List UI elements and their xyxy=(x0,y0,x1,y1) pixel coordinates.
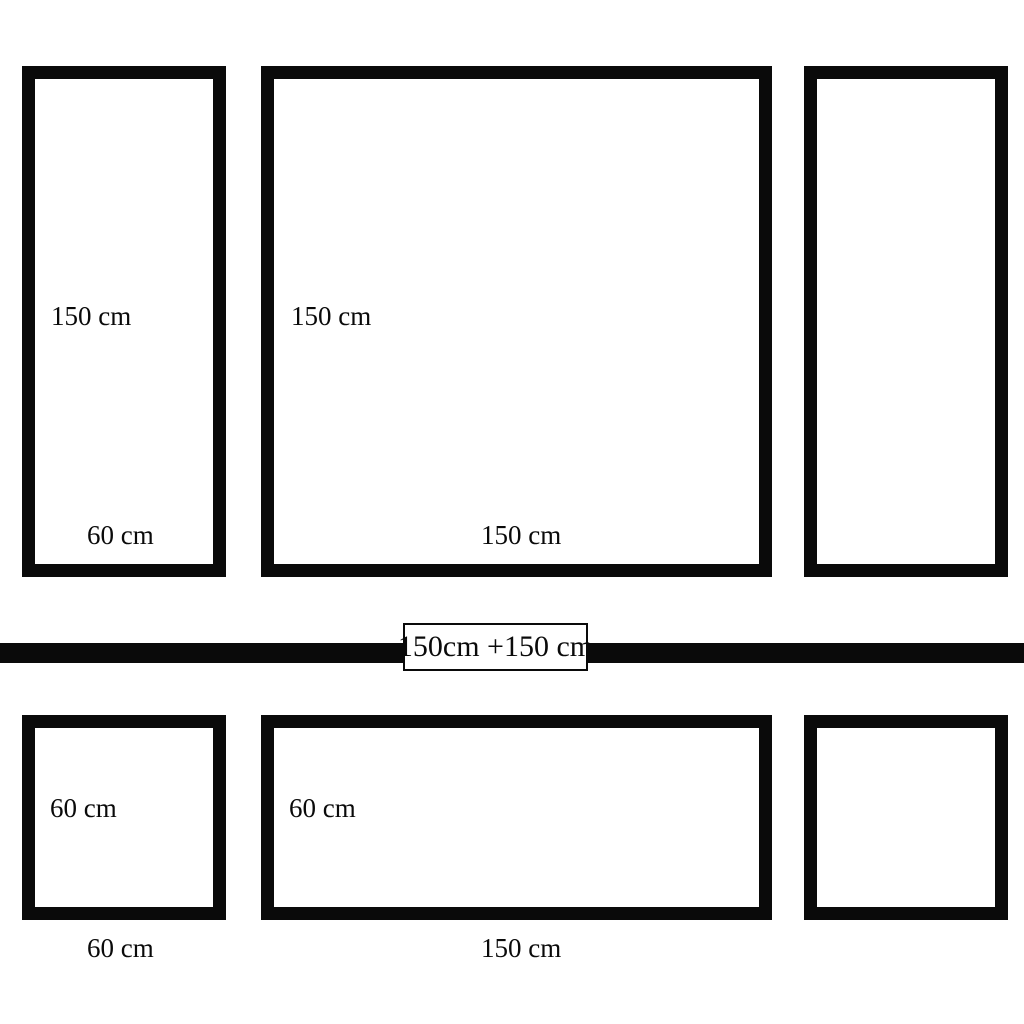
frame-tall-left-height-label: 150 cm xyxy=(51,303,131,330)
frame-tall-right xyxy=(804,66,1008,577)
frame-wide-width-label: 150 cm xyxy=(481,935,561,962)
frame-large-square-height-label: 150 cm xyxy=(291,303,371,330)
frame-large-square-width-label: 150 cm xyxy=(481,522,561,549)
frame-small-square-right xyxy=(804,715,1008,920)
frame-tall-left-width-label: 60 cm xyxy=(87,522,154,549)
frame-small-square-left-width-label: 60 cm xyxy=(87,935,154,962)
frame-set-diagram: 150 cm 150 cm 60 cm 150 cm 150cm +150 cm… xyxy=(0,0,1024,1024)
frame-small-square-left-height-label: 60 cm xyxy=(50,795,117,822)
frame-wide-height-label: 60 cm xyxy=(289,795,356,822)
divider-label: 150cm +150 cm xyxy=(398,632,593,662)
divider-label-box: 150cm +150 cm xyxy=(403,623,588,671)
